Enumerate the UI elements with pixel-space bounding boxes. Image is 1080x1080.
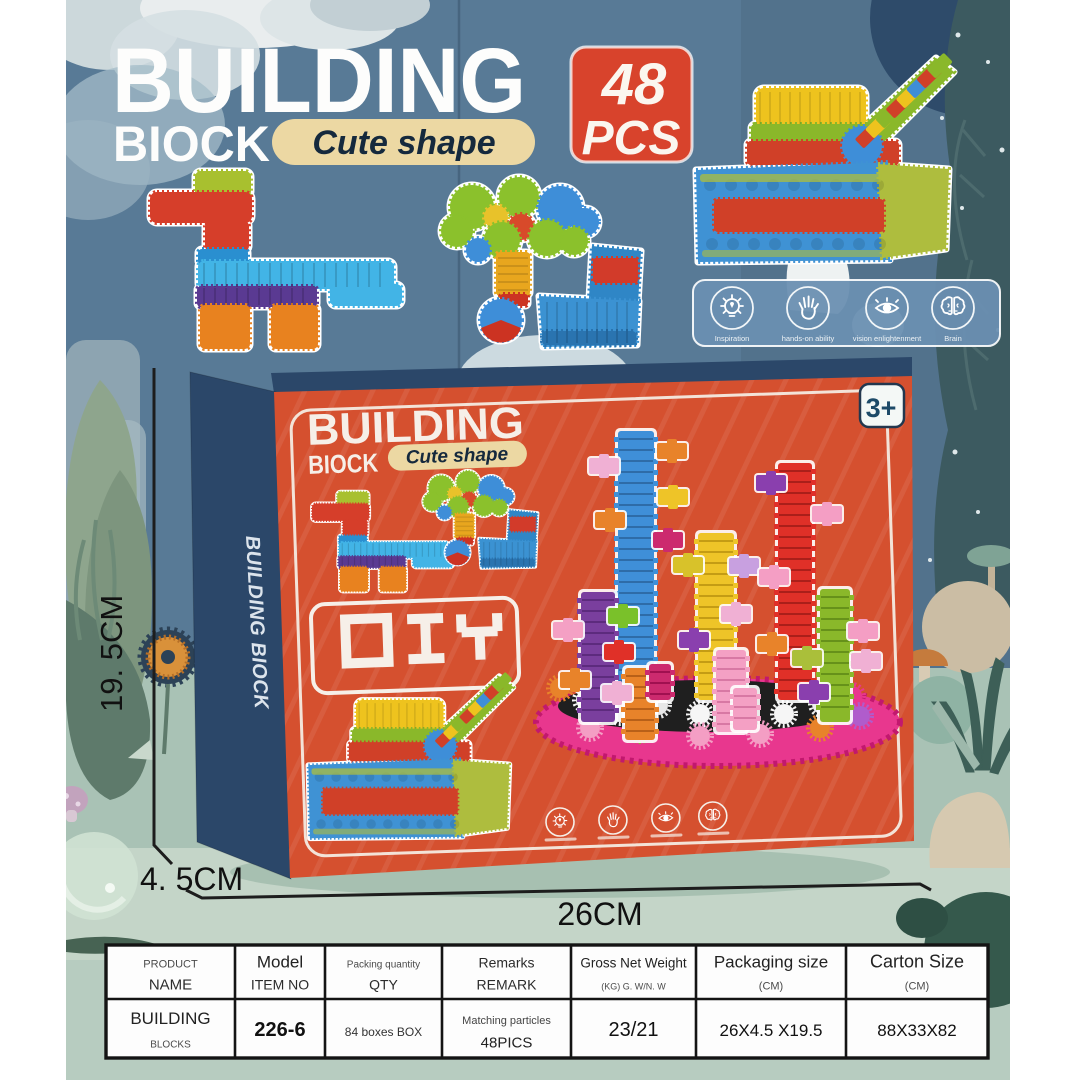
svg-text:26CM: 26CM [557,896,642,932]
svg-text:hands-on ability: hands-on ability [782,334,835,343]
svg-text:Matching particles: Matching particles [462,1015,551,1027]
svg-text:Gross Net Weight: Gross Net Weight [580,956,687,971]
svg-text:BUILDING: BUILDING [130,1009,210,1028]
svg-text:Inspiration: Inspiration [715,334,750,343]
svg-text:Packing quantity: Packing quantity [347,960,420,971]
svg-text:Brain: Brain [944,334,962,343]
svg-text:(CM): (CM) [905,980,929,992]
svg-text:BLOCKS: BLOCKS [150,1039,191,1050]
svg-text:19. 5CM: 19. 5CM [94,595,129,712]
svg-text:QTY: QTY [369,976,398,992]
svg-text:3+: 3+ [866,393,897,423]
svg-text:REMARK: REMARK [477,976,538,992]
svg-text:vision enlightenment: vision enlightenment [853,334,922,343]
svg-text:Cute shape: Cute shape [405,444,509,469]
svg-text:ITEM NO: ITEM NO [251,976,309,992]
svg-text:Model: Model [257,953,303,972]
svg-text:48: 48 [601,52,667,117]
svg-text:BIOCK: BIOCK [113,116,270,172]
svg-text:PRODUCT: PRODUCT [143,959,198,971]
svg-text:Carton Size: Carton Size [870,952,964,972]
svg-text:NAME: NAME [149,976,192,993]
svg-text:Remarks: Remarks [478,955,534,971]
svg-text:Cute shape: Cute shape [312,124,495,162]
svg-text:Packaging size: Packaging size [714,953,828,972]
svg-text:26X4.5 X19.5: 26X4.5 X19.5 [719,1021,822,1040]
svg-text:BIOCK: BIOCK [308,447,379,479]
svg-text:23/21: 23/21 [608,1019,658,1041]
svg-text:(KG) G. W/N. W: (KG) G. W/N. W [601,981,666,991]
svg-text:84 boxes BOX: 84 boxes BOX [345,1025,422,1039]
svg-text:(CM): (CM) [759,980,783,992]
svg-text:88X33X82: 88X33X82 [877,1021,956,1040]
svg-text:226-6: 226-6 [254,1019,305,1041]
svg-text:48PICS: 48PICS [481,1034,533,1051]
svg-text:PCS: PCS [582,112,681,165]
